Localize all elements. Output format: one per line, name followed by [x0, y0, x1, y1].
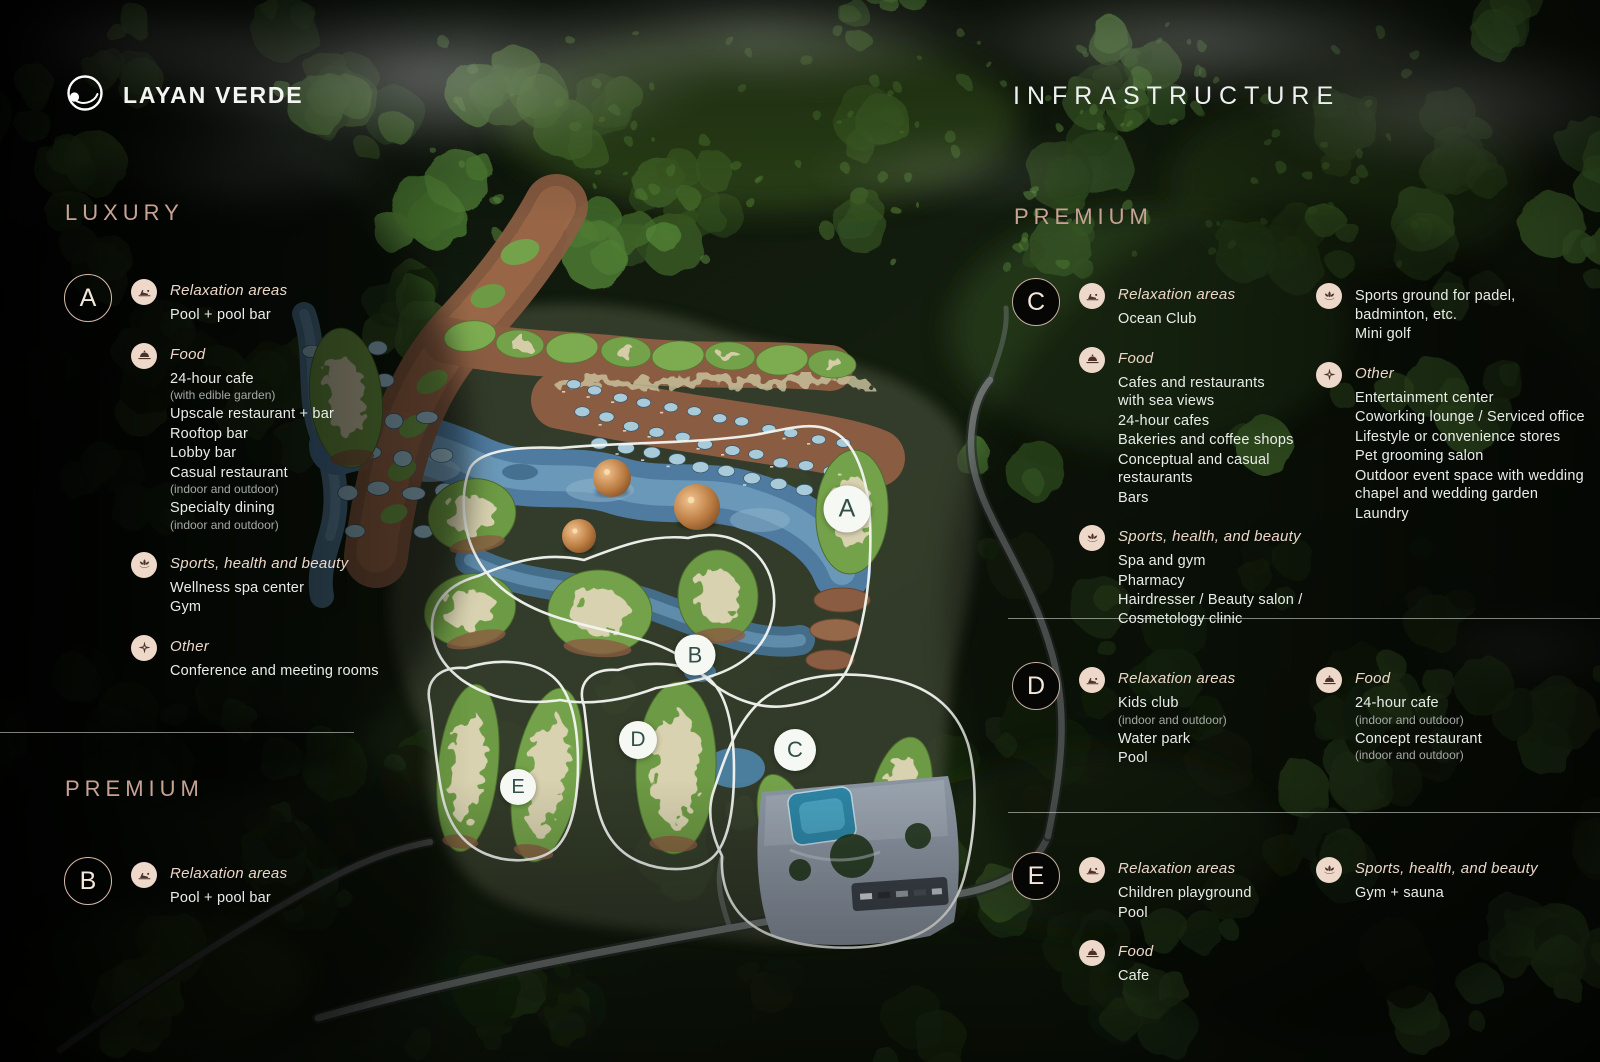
amenity-item: Gym: [170, 598, 348, 617]
map-zone-badge-e: E: [500, 769, 536, 805]
category-label: Sports, health, and beauty: [1355, 861, 1538, 877]
amenity-item: Pool + pool bar: [170, 889, 287, 908]
amenity-item: Hairdresser / Beauty salon / Cosmetology…: [1118, 591, 1303, 628]
amenity-item: Concept restaurant: [1355, 730, 1482, 749]
amenity-item: Conference and meeting rooms: [170, 662, 379, 681]
amenity-item: Entertainment center: [1355, 389, 1585, 408]
zone-a-badge: A: [64, 274, 112, 322]
amenity-item: Ocean Club: [1118, 310, 1235, 329]
amenity-note: (with edible garden): [170, 388, 334, 402]
section-divider: [0, 732, 354, 733]
amenity-item: Pool: [1118, 749, 1235, 768]
category-label: Relaxation areas: [170, 283, 287, 299]
category-label: Relaxation areas: [1118, 671, 1235, 687]
luxury-heading: LUXURY: [65, 200, 184, 226]
amenity-item: Children playground: [1118, 884, 1252, 903]
compass-icon: [131, 635, 157, 661]
lotus-icon: [131, 552, 157, 578]
amenity-group: Other Conference and meeting rooms: [131, 639, 391, 682]
amenity-item: Mini golf: [1355, 325, 1515, 344]
map-zone-badge-c: C: [774, 729, 816, 771]
category-label: Sports, health and beauty: [170, 556, 348, 572]
map-zone-badge-a: A: [824, 486, 871, 533]
lounger-icon: [1079, 667, 1105, 693]
amenity-item: Cafe: [1118, 967, 1153, 986]
zone-d-badge: D: [1012, 662, 1060, 710]
lounger-icon: [131, 279, 157, 305]
amenity-group: Sports, health, and beauty Gym + sauna: [1316, 861, 1596, 904]
amenity-item: Pharmacy: [1118, 572, 1303, 591]
category-label: Other: [1355, 366, 1585, 382]
category-label: Food: [1118, 351, 1304, 367]
amenity-group: Food 24-hour cafe (with edible garden) U…: [131, 347, 391, 535]
amenity-note: (indoor and outdoor): [1118, 713, 1235, 727]
amenity-item: Outdoor event space with wedding chapel …: [1355, 467, 1585, 504]
category-label: Relaxation areas: [1118, 287, 1235, 303]
amenity-item: Spa and gym: [1118, 552, 1303, 571]
category-label: Other: [170, 639, 379, 655]
compass-icon: [1316, 362, 1342, 388]
amenity-item: Pet grooming salon: [1355, 447, 1585, 466]
amenity-item: Pool: [1118, 904, 1252, 923]
category-label: Sports, health, and beauty: [1118, 529, 1303, 545]
amenity-item: Wellness spa center: [170, 579, 348, 598]
category-label: Food: [1355, 671, 1482, 687]
amenity-item: Lifestyle or convenience stores: [1355, 428, 1585, 447]
orbit-ring-icon: [62, 70, 108, 121]
amenity-item: Casual restaurant: [170, 464, 334, 483]
amenity-group: Food Cafe: [1079, 944, 1304, 987]
amenity-group: Relaxation areas Ocean Club: [1079, 287, 1304, 330]
zone-c-badge: C: [1012, 278, 1060, 326]
zone-e-legend: E Relaxation areas Children playground P…: [1012, 852, 1596, 1008]
amenity-note: (indoor and outdoor): [170, 518, 334, 532]
zone-d-legend: D Relaxation areas Kids club (indoor and…: [1012, 662, 1596, 790]
map-zone-badge-b: B: [675, 635, 716, 676]
amenity-note: (indoor and outdoor): [170, 482, 334, 496]
food-icon: [131, 343, 157, 369]
food-icon: [1079, 940, 1105, 966]
brand-logo: LAYAN VERDE: [62, 70, 303, 121]
page-title: INFRASTRUCTURE: [1013, 82, 1340, 111]
zone-b-legend: B Relaxation areas Pool + pool bar: [64, 857, 391, 930]
amenity-group: Relaxation areas Pool + pool bar: [131, 283, 391, 326]
amenity-item: Sports ground for padel, badminton, etc.: [1355, 287, 1515, 324]
amenity-group: Relaxation areas Kids club (indoor and o…: [1079, 671, 1304, 769]
amenity-group: Relaxation areas Pool + pool bar: [131, 866, 391, 909]
amenity-item: Laundry: [1355, 505, 1585, 524]
zone-c-legend: C Relaxation areas Ocean Club Food Cafes…: [1012, 278, 1596, 650]
amenity-item: Water park: [1118, 730, 1235, 749]
category-label: Food: [170, 347, 334, 363]
amenity-item: Specialty dining: [170, 499, 334, 518]
amenity-item: 24-hour cafe: [170, 370, 334, 389]
lounger-icon: [1079, 857, 1105, 883]
lotus-icon: [1316, 283, 1342, 309]
amenity-item: Lobby bar: [170, 444, 334, 463]
amenity-item: Upscale restaurant + bar: [170, 405, 334, 424]
lounger-icon: [1079, 283, 1105, 309]
amenity-group: Relaxation areas Children playground Poo…: [1079, 861, 1304, 923]
amenity-item: Bakeries and coffee shops: [1118, 431, 1304, 450]
amenity-item: Rooftop bar: [170, 425, 334, 444]
zone-a-legend: A Relaxation areas Pool + pool bar Food …: [64, 274, 391, 702]
amenity-item: Cafes and restaurants with sea views: [1118, 374, 1304, 411]
amenity-item: 24-hour cafe: [1355, 694, 1482, 713]
zone-b-badge: B: [64, 857, 112, 905]
amenity-item: Gym + sauna: [1355, 884, 1538, 903]
amenity-group: Sports ground for padel, badminton, etc.…: [1316, 287, 1596, 345]
amenity-item: Pool + pool bar: [170, 306, 287, 325]
lounger-icon: [131, 862, 157, 888]
amenity-group: Sports, health, and beauty Spa and gym P…: [1079, 529, 1304, 629]
amenity-item: Coworking lounge / Serviced office: [1355, 408, 1585, 427]
lotus-icon: [1316, 857, 1342, 883]
zone-e-badge: E: [1012, 852, 1060, 900]
food-icon: [1079, 347, 1105, 373]
amenity-note: (indoor and outdoor): [1355, 713, 1482, 727]
map-zone-badge-d: D: [619, 721, 657, 759]
amenity-group: Food Cafes and restaurants with sea view…: [1079, 351, 1304, 509]
section-divider: [1008, 812, 1600, 813]
category-label: Food: [1118, 944, 1153, 960]
food-icon: [1316, 667, 1342, 693]
premium-heading-right: PREMIUM: [1014, 204, 1153, 230]
amenity-item: 24-hour cafes: [1118, 412, 1304, 431]
category-label: Relaxation areas: [1118, 861, 1252, 877]
brand-name: LAYAN VERDE: [123, 82, 303, 109]
lotus-icon: [1079, 525, 1105, 551]
section-divider: [1008, 618, 1600, 619]
category-label: Relaxation areas: [170, 866, 287, 882]
amenity-item: Conceptual and casual restaurants: [1118, 451, 1304, 488]
premium-heading-left: PREMIUM: [65, 776, 204, 802]
amenity-item: Bars: [1118, 489, 1304, 508]
amenity-item: Kids club: [1118, 694, 1235, 713]
amenity-note: (indoor and outdoor): [1355, 748, 1482, 762]
amenity-group: Sports, health and beauty Wellness spa c…: [131, 556, 391, 618]
amenity-group: Food 24-hour cafe (indoor and outdoor) C…: [1316, 671, 1596, 765]
amenity-group: Other Entertainment center Coworking lou…: [1316, 366, 1596, 525]
infographic-stage: A B C D E LAYAN VERDE INFRASTRUCTURE LUX…: [0, 0, 1600, 1062]
